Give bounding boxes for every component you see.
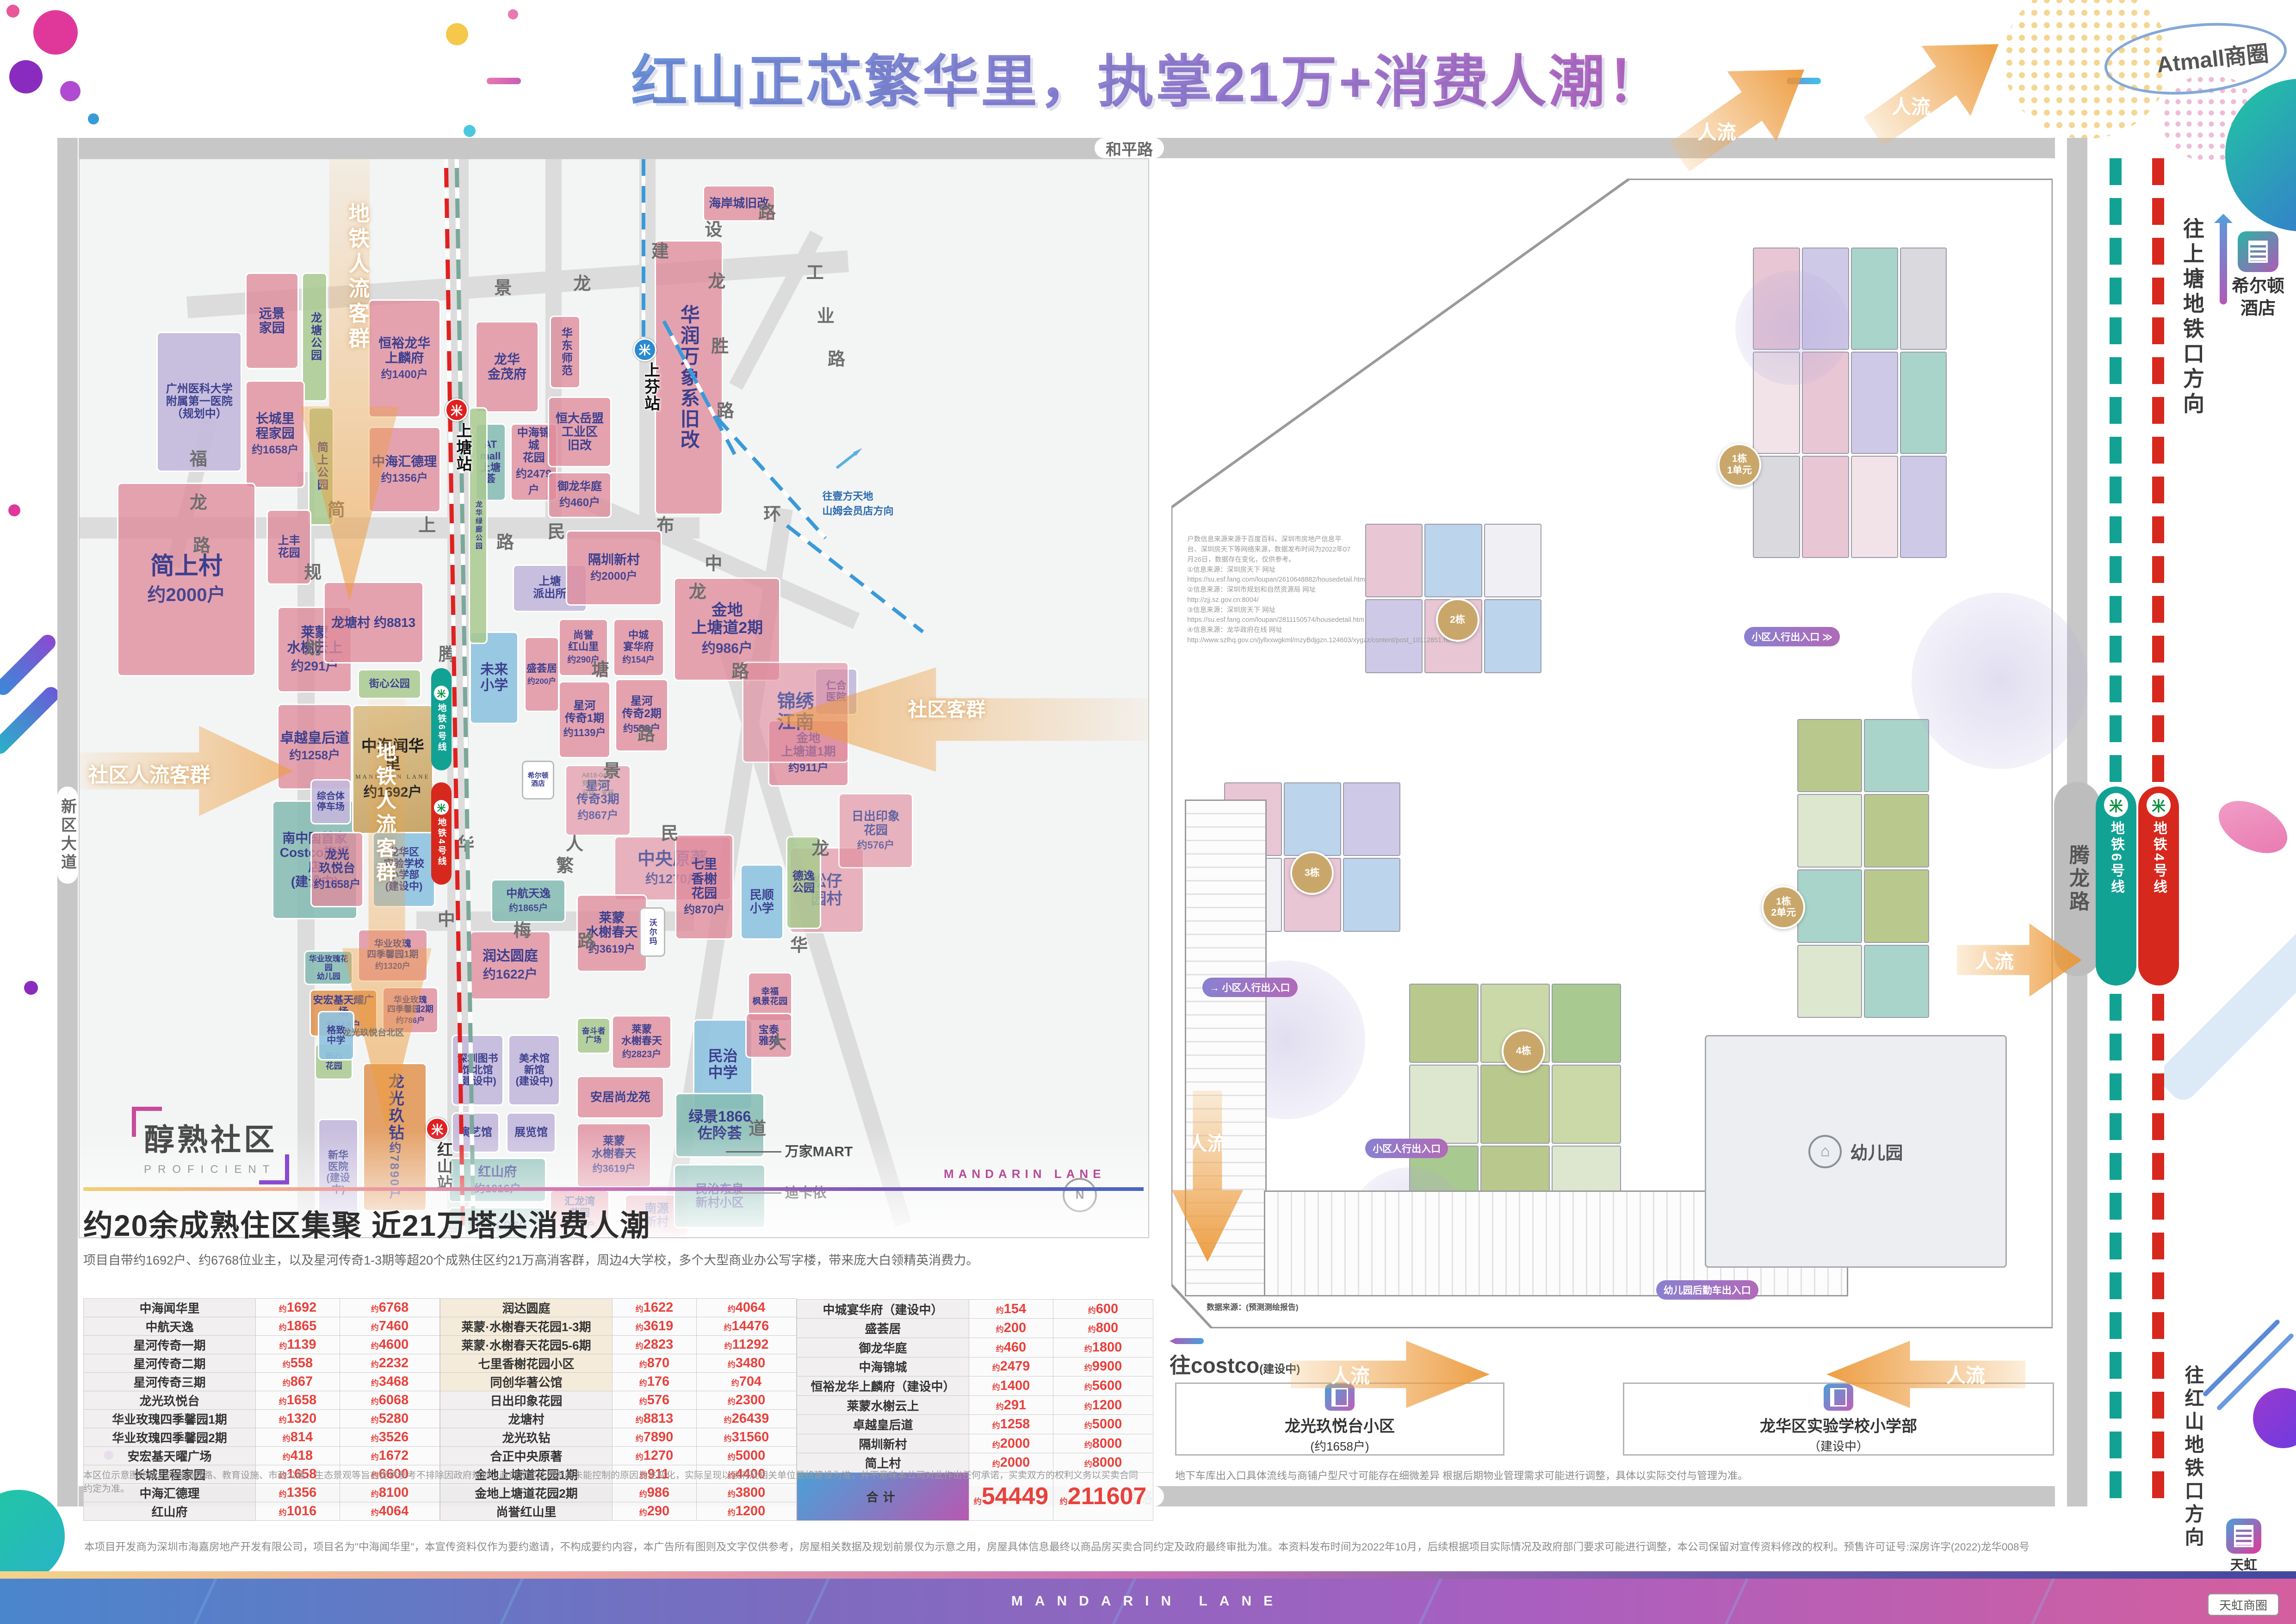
value-approx: 约 bbox=[283, 1360, 291, 1369]
community-badge: 醇熟社区 PROFICIENT bbox=[132, 1107, 289, 1184]
community-badge-text: 醇熟社区 bbox=[144, 1115, 277, 1159]
value-approx: 约 bbox=[974, 1497, 982, 1506]
building-unit bbox=[1864, 719, 1929, 793]
cell-households: 约7890 bbox=[613, 1428, 697, 1447]
value-approx: 约 bbox=[283, 1453, 291, 1462]
building-unit bbox=[1900, 352, 1947, 454]
map-road-char: 龙 bbox=[190, 488, 207, 514]
building-badge: 4栋 bbox=[1502, 1029, 1545, 1073]
value-approx: 约 bbox=[728, 1305, 736, 1314]
cell-planning: 约5600 bbox=[1053, 1376, 1153, 1396]
value-number: 1016 bbox=[287, 1504, 317, 1519]
map-road-char: 业 bbox=[817, 302, 835, 327]
cell-households: 约1658 bbox=[256, 1391, 340, 1410]
table-row: 星河传奇三期约867约3468 bbox=[84, 1373, 440, 1391]
map-flow-label: 地铁人流客群 bbox=[342, 202, 373, 352]
value-approx: 约 bbox=[636, 1434, 644, 1443]
cell-planning: 约704 bbox=[697, 1373, 797, 1391]
map-block-label: 隔圳新村 bbox=[588, 552, 640, 567]
building-unit bbox=[1484, 599, 1541, 673]
value-number: 5600 bbox=[1092, 1378, 1122, 1393]
map-block-shenghuiju: 盛荟居约200户 bbox=[524, 637, 559, 712]
value-number: 290 bbox=[647, 1504, 669, 1519]
map-block-jinmaofu: 龙华金茂府 bbox=[475, 321, 539, 413]
value-number: 2232 bbox=[379, 1356, 409, 1370]
map-sam-note: 往壹方天地山姆会员店方向 bbox=[822, 488, 893, 518]
value-approx: 约 bbox=[1084, 1364, 1092, 1372]
left-arrow-icon bbox=[1170, 1338, 1204, 1344]
cell-households: 约290 bbox=[613, 1502, 697, 1521]
table-header: 项目 bbox=[84, 1276, 256, 1299]
value-approx: 约 bbox=[279, 1342, 287, 1351]
building-unit bbox=[1552, 1065, 1621, 1144]
value-approx: 约 bbox=[636, 1453, 644, 1462]
road-heping-label: 和平路 bbox=[1095, 138, 1164, 158]
building-icon bbox=[1824, 1384, 1853, 1411]
footer-gradient-bar bbox=[0, 1571, 2296, 1579]
cell-households: 约1258 bbox=[969, 1415, 1053, 1434]
value-approx: 约 bbox=[636, 1342, 644, 1351]
table-header: 社区规划（人） bbox=[340, 1276, 440, 1299]
value-number: 1658 bbox=[287, 1393, 317, 1407]
entrance-pill: → 小区人行出入口 bbox=[1202, 978, 1298, 997]
cell-planning: 约1800 bbox=[1053, 1338, 1153, 1357]
map-block-sub: 约154户 bbox=[622, 653, 655, 665]
map-block-label: 龙华金茂府 bbox=[488, 352, 526, 381]
map-block-sub: 约460户 bbox=[559, 493, 600, 509]
cell-planning: 约5000 bbox=[697, 1447, 797, 1465]
site-plan: ⌂幼儿园1栋1单元2栋3栋1栋2单元4栋小区人行出入口 ≫→ 小区人行出入口小区… bbox=[1171, 179, 2053, 1328]
value-number: 2000 bbox=[1000, 1436, 1030, 1451]
decor-circle bbox=[464, 125, 476, 137]
value-approx: 约 bbox=[371, 1323, 379, 1332]
map-block-label: 民治中学 bbox=[708, 1048, 738, 1081]
map-block-label: 幸福枫景花园 bbox=[752, 987, 787, 1007]
cell-project: 龙塘村 bbox=[440, 1410, 613, 1428]
table-row: 隔圳新村约2000约8000 bbox=[797, 1434, 1153, 1453]
cell-planning: 约5280 bbox=[340, 1410, 440, 1428]
building-unit bbox=[1797, 794, 1863, 868]
cell-households: 约200 bbox=[969, 1319, 1053, 1338]
map-road bbox=[729, 230, 823, 390]
line4-capsule: 米 地铁4号线 bbox=[2138, 787, 2179, 986]
map-block-jiuyuetai: 龙光玖悦台约1658户 bbox=[310, 832, 364, 907]
building-unit bbox=[1900, 248, 1947, 350]
map-road-char: 路 bbox=[731, 657, 749, 682]
map-block-longtangcun: 龙塘村 约8813 bbox=[323, 582, 424, 663]
map-block-label: 安居尚龙苑 bbox=[590, 1091, 650, 1104]
value-approx: 约 bbox=[371, 1416, 379, 1425]
flow-label: 人流 bbox=[1331, 1360, 1370, 1388]
value-number: 1200 bbox=[736, 1504, 766, 1519]
cell-households: 约3619 bbox=[613, 1317, 697, 1336]
value-number: 200 bbox=[1004, 1320, 1026, 1335]
cell-planning: 约7460 bbox=[340, 1317, 440, 1336]
cell-project: 红山府 bbox=[84, 1502, 256, 1521]
hotel-icon bbox=[2238, 231, 2278, 272]
map-block-sub: 约1356户 bbox=[381, 469, 428, 485]
bottom-box-community: 龙光玖悦台小区(约1658户) bbox=[1175, 1382, 1504, 1456]
map-block-label: 盛荟居 bbox=[526, 663, 557, 675]
table-header: 社区规划（人） bbox=[1053, 1276, 1153, 1299]
building-unit bbox=[1851, 352, 1898, 454]
building-unit bbox=[1409, 984, 1479, 1063]
district-map: 远景家园龙塘公园广州医科大学附属第一医院（规划中）长城里程家园约1658户简上公… bbox=[79, 158, 1149, 1238]
blue-arrow-icon bbox=[835, 446, 863, 470]
plan-bubble bbox=[1735, 271, 1850, 385]
building-unit bbox=[1552, 984, 1621, 1063]
value-number: 31560 bbox=[732, 1430, 769, 1444]
cell-households: 约2479 bbox=[969, 1357, 1053, 1376]
table-header: 户数（户） bbox=[256, 1276, 340, 1299]
map-line-pill: 米地铁6号线 bbox=[431, 668, 452, 770]
value-number: 814 bbox=[291, 1430, 313, 1444]
value-approx: 约 bbox=[996, 1345, 1004, 1353]
table-row: 恒裕龙华上麟府（建设中）约1400约5600 bbox=[797, 1376, 1153, 1396]
value-approx: 约 bbox=[279, 1323, 287, 1332]
value-number: 5000 bbox=[1092, 1417, 1122, 1432]
map-block-label: 美术馆新馆(建设中) bbox=[516, 1053, 553, 1087]
cell-households: 约558 bbox=[256, 1354, 340, 1373]
map-block-label: 广州医科大学附属第一医院（规划中） bbox=[166, 383, 233, 421]
map-road-char: 胜 bbox=[711, 332, 729, 357]
value-approx: 约 bbox=[1088, 1325, 1096, 1334]
bottom-box-title: 龙光玖悦台小区 bbox=[1285, 1413, 1395, 1436]
value-approx: 约 bbox=[1084, 1441, 1092, 1450]
map-road-char: 华 bbox=[790, 931, 808, 956]
map-block-label: 中城宴华府 bbox=[623, 630, 654, 652]
value-number: 870 bbox=[647, 1356, 669, 1370]
building-1-2 bbox=[1797, 719, 1930, 1018]
bottom-box-school: 龙华区实验学校小学部（建设中） bbox=[1623, 1382, 2054, 1456]
cell-households: 约1016 bbox=[256, 1502, 340, 1521]
value-approx: 约 bbox=[728, 1508, 736, 1517]
value-number: 1692 bbox=[287, 1300, 317, 1315]
map-road-char: 塘 bbox=[591, 655, 609, 681]
table-header-row: 项目户数（户）社区规划（人） bbox=[797, 1276, 1153, 1299]
decor-circle bbox=[6, 5, 19, 18]
bottom-box-sub: （建设中） bbox=[1808, 1437, 1869, 1454]
value-number: 3468 bbox=[379, 1374, 409, 1389]
cell-households: 约154 bbox=[969, 1299, 1053, 1319]
map-block-sub: 约2000户 bbox=[590, 567, 637, 583]
cell-project: 恒裕龙华上麟府（建设中） bbox=[797, 1376, 969, 1396]
map-flow-label: 社区人流客群 bbox=[88, 758, 210, 788]
map-block-sub: 约1658户 bbox=[314, 875, 360, 891]
building-unit bbox=[1424, 524, 1482, 598]
map-block-hengyu: 恒裕龙华上麟府约1400户 bbox=[368, 299, 441, 418]
building-unit bbox=[1365, 599, 1423, 673]
map-block-parking: 综合体停车场 bbox=[310, 779, 351, 824]
table-header: 社区规划（人） bbox=[697, 1276, 797, 1299]
value-approx: 约 bbox=[371, 1397, 379, 1406]
table-row: 七里香榭花园小区约870约3480 bbox=[440, 1354, 797, 1373]
map-block-label: 上丰花园 bbox=[278, 535, 300, 560]
building-unit bbox=[1343, 858, 1400, 932]
map-block-runda: 润达圆庭约1622户 bbox=[470, 931, 551, 1000]
map-block-label: 卓越皇后道 bbox=[280, 731, 349, 746]
value-number: 4064 bbox=[736, 1300, 766, 1315]
cell-households: 约1139 bbox=[256, 1336, 340, 1354]
cell-planning: 约4064 bbox=[340, 1502, 440, 1521]
cell-planning: 约800 bbox=[1053, 1319, 1153, 1338]
households-info-note: 户数信息来源来源于百度百科、深圳市房地产信息平台、深圳房天下等网络来源，数据发布… bbox=[1187, 535, 1355, 645]
map-block-label: 龙光玖悦台 bbox=[319, 848, 355, 875]
map-block-meishuguan: 美术馆新馆(建设中) bbox=[508, 1035, 560, 1106]
map-block-hengda: 恒大岳盟工业区旧改 bbox=[548, 397, 612, 468]
map-block-xinghe1: 星河传奇1期约1139户 bbox=[558, 681, 611, 759]
map-road-char: 大 bbox=[769, 1028, 786, 1054]
value-approx: 约 bbox=[371, 1453, 379, 1462]
cell-project: 星河传奇一期 bbox=[84, 1336, 256, 1354]
value-approx: 约 bbox=[639, 1508, 647, 1517]
building-unit bbox=[1343, 782, 1400, 856]
line6-label: 地铁6号线 bbox=[2106, 821, 2126, 896]
map-block-weilai: 未来小学 bbox=[470, 632, 519, 724]
kindergarten-block: ⌂幼儿园 bbox=[1705, 1035, 2007, 1268]
plan-source-note: 数据来源：(预测测绘报告) bbox=[1207, 1301, 1298, 1312]
map-block-huadong: 华东师范 bbox=[550, 316, 581, 389]
costco-text: 往costco bbox=[1170, 1353, 1259, 1377]
cell-planning: 约600 bbox=[1053, 1299, 1153, 1319]
map-road-char: 龙 bbox=[689, 577, 706, 603]
map-block-label: 御龙华庭 bbox=[557, 481, 602, 493]
cell-planning: 约11292 bbox=[697, 1336, 797, 1354]
table-row: 日出印象花园约576约2300 bbox=[440, 1391, 797, 1410]
cell-planning: 约4600 bbox=[340, 1336, 440, 1354]
map-road-char: 景 bbox=[494, 273, 512, 299]
map-block-changchengli: 长城里程家园约1658户 bbox=[245, 380, 305, 488]
value-number: 11292 bbox=[732, 1337, 768, 1352]
table-header-row: 项目户数（户）社区规划（人） bbox=[84, 1276, 440, 1299]
cell-project: 七里香榭花园小区 bbox=[440, 1354, 613, 1373]
value-approx: 约 bbox=[724, 1342, 732, 1351]
map-block-sub: 约2000户 bbox=[148, 580, 226, 607]
cell-project: 莱蒙·水榭春天花园5-6期 bbox=[440, 1336, 613, 1354]
table-row: 合正中央原著约1270约5000 bbox=[440, 1447, 797, 1465]
building-unit bbox=[1797, 869, 1863, 943]
value-approx: 约 bbox=[371, 1434, 379, 1443]
building-unit bbox=[1409, 1065, 1479, 1144]
value-number: 800 bbox=[1096, 1320, 1118, 1335]
bottom-box-sub: (约1658户) bbox=[1310, 1437, 1369, 1454]
table-row: 星河传奇二期约558约2232 bbox=[84, 1354, 440, 1373]
map-road-char: 划 bbox=[304, 633, 322, 659]
building-badge: 3栋 bbox=[1290, 851, 1334, 895]
cell-project: 卓越皇后道 bbox=[797, 1415, 969, 1434]
value-number: 3526 bbox=[379, 1430, 409, 1444]
rainbow-circle-pill: 天虹商圈 bbox=[2208, 1593, 2279, 1616]
building-unit bbox=[1851, 248, 1898, 350]
cell-households: 约2000 bbox=[969, 1434, 1053, 1453]
value-number: 5000 bbox=[736, 1448, 766, 1463]
title-dash-left bbox=[487, 78, 521, 84]
flow-label: 人流 bbox=[1188, 1128, 1227, 1156]
hilton-poi: 希尔顿酒店 bbox=[2228, 231, 2288, 320]
cell-project: 华业玫瑰四季馨园1期 bbox=[84, 1410, 256, 1428]
value-approx: 约 bbox=[1084, 1345, 1092, 1353]
building-unit bbox=[1900, 456, 1947, 558]
building-unit bbox=[1864, 869, 1929, 943]
value-approx: 约 bbox=[728, 1397, 736, 1406]
map-block-label: 尚誉红山里 bbox=[568, 630, 599, 652]
table-row: 华业玫瑰四季馨园2期约814约3526 bbox=[84, 1428, 440, 1447]
value-number: 6068 bbox=[379, 1393, 409, 1407]
entrance-pill: 小区人行出入口 bbox=[1365, 1139, 1448, 1158]
value-approx: 约 bbox=[636, 1305, 644, 1314]
value-approx: 约 bbox=[724, 1323, 732, 1332]
cell-households: 约1622 bbox=[613, 1299, 697, 1317]
map-blue-line bbox=[642, 159, 645, 342]
table-row: 尚誉红山里约290约1200 bbox=[440, 1502, 797, 1521]
value-number: 600 bbox=[1096, 1302, 1118, 1316]
map-block-minshun: 民顺小学 bbox=[740, 864, 784, 940]
table-row: 中海锦城约2479约9900 bbox=[797, 1357, 1153, 1376]
table-row: 润达圆庭约1622约4064 bbox=[440, 1299, 797, 1317]
map-block-sub: 约870户 bbox=[684, 900, 724, 917]
cell-project: 中航天逸 bbox=[84, 1317, 256, 1336]
map-block-label: 华东师范 bbox=[559, 327, 571, 377]
value-number: 1400 bbox=[1000, 1378, 1030, 1393]
map-block-sub: 约3619户 bbox=[588, 940, 635, 956]
map-road-char: 龙 bbox=[811, 834, 829, 860]
map-block-shuixie2823: 莱蒙水榭春天约2823户 bbox=[612, 1015, 671, 1069]
map-block-jiexin-park: 街心公园 bbox=[358, 669, 422, 699]
cell-households: 约867 bbox=[256, 1373, 340, 1391]
cell-planning: 约1672 bbox=[340, 1447, 440, 1465]
value-number: 14476 bbox=[732, 1319, 769, 1333]
map-block-label: 金地上塘道2期 bbox=[691, 601, 763, 637]
value-number: 3480 bbox=[736, 1356, 766, 1370]
value-number: 1200 bbox=[1092, 1398, 1122, 1413]
table-row: 华业玫瑰四季馨园1期约1320约5280 bbox=[84, 1410, 440, 1428]
map-road-char: 民 bbox=[661, 819, 679, 844]
map-block-label: 润达圆庭 bbox=[483, 948, 538, 964]
value-approx: 约 bbox=[371, 1508, 379, 1517]
cell-project: 安宏基天曜广场 bbox=[84, 1447, 256, 1465]
map-block-label: 龙塘公园 bbox=[309, 312, 321, 362]
cell-planning: 约8000 bbox=[1053, 1434, 1153, 1453]
cell-households: 约870 bbox=[613, 1354, 697, 1373]
mall-icon bbox=[2226, 1519, 2261, 1554]
cell-project: 日出印象花园 bbox=[440, 1391, 613, 1410]
hilton-label: 希尔顿酒店 bbox=[2232, 276, 2284, 320]
kindergarten-icon: ⌂ bbox=[1808, 1135, 1842, 1168]
value-approx: 约 bbox=[371, 1360, 379, 1369]
brand-small: MANDARIN LANE bbox=[944, 1167, 1106, 1181]
cell-households: 约8813 bbox=[613, 1410, 697, 1428]
cell-project: 龙光玖钻 bbox=[440, 1428, 613, 1447]
cell-project: 龙光玖悦台 bbox=[84, 1391, 256, 1410]
map-block-label: 星河传奇2期 bbox=[622, 695, 661, 720]
legal-disclaimer: 本项目开发商为深圳市海嘉房地产开发有限公司，项目名为"中海闻华里"，本宣传资料仅… bbox=[84, 1539, 2073, 1554]
map-block-label: 街心公园 bbox=[369, 678, 410, 690]
map-road-char: 梅 bbox=[514, 916, 531, 942]
cell-planning: 约6768 bbox=[340, 1299, 440, 1317]
map-block-label: 上塘派出所 bbox=[533, 576, 566, 601]
value-approx: 约 bbox=[992, 1383, 1000, 1392]
map-block-sub: 约1258户 bbox=[289, 746, 340, 763]
map-block-label: 七里香榭花园 bbox=[691, 857, 717, 900]
building-unit bbox=[1851, 456, 1898, 558]
map-road-char: 上 bbox=[418, 511, 436, 536]
map-road-char: 规 bbox=[304, 558, 322, 583]
cell-households: 约1270 bbox=[613, 1447, 697, 1465]
cell-planning: 约3468 bbox=[340, 1373, 440, 1391]
table-row: 御龙华庭约460约1800 bbox=[797, 1338, 1153, 1357]
map-block-sub: 约1658户 bbox=[252, 440, 298, 457]
building-unit bbox=[1284, 782, 1341, 856]
line4-label: 地铁4号线 bbox=[2148, 821, 2169, 896]
map-block-label: 华润万象系旧改 bbox=[678, 304, 699, 450]
table-row: 安宏基天曜广场约418约1672 bbox=[84, 1447, 440, 1465]
map-block-label: 恒裕龙华上麟府 bbox=[378, 336, 430, 365]
map-road-char: 福 bbox=[190, 445, 207, 470]
flow-label: 人流 bbox=[1975, 946, 2014, 974]
map-block-label: 沃尔玛 bbox=[648, 918, 657, 946]
value-number: 576 bbox=[647, 1393, 669, 1407]
decor-bar bbox=[0, 684, 62, 757]
map-block-label: 德逸公园 bbox=[792, 870, 815, 895]
value-approx: 约 bbox=[724, 1434, 732, 1443]
map-road-char: 龙 bbox=[708, 267, 725, 292]
map-line-pill-label: 地铁4号线 bbox=[435, 818, 447, 867]
value-number: 7460 bbox=[379, 1319, 409, 1333]
map-road-char: 路 bbox=[577, 927, 595, 952]
table-row: 龙光玖钻约7890约31560 bbox=[440, 1428, 797, 1447]
cell-planning: 约26439 bbox=[697, 1410, 797, 1428]
map-beiqu-label: 龙光玖悦台北区 bbox=[342, 1026, 404, 1038]
value-approx: 约 bbox=[992, 1441, 1000, 1450]
building-unit bbox=[1480, 1065, 1550, 1144]
building-unit bbox=[1802, 456, 1849, 558]
cell-project: 御龙华庭 bbox=[797, 1338, 969, 1357]
cell-planning: 约2300 bbox=[697, 1391, 797, 1410]
metro-station-icon: 米 bbox=[633, 338, 656, 361]
cell-households: 约2823 bbox=[613, 1336, 697, 1354]
metro-station-label: 上塘站 bbox=[452, 422, 474, 472]
metro-icon: 米 bbox=[2147, 793, 2171, 817]
value-number: 6768 bbox=[379, 1300, 409, 1315]
table-header: 项目 bbox=[440, 1276, 613, 1299]
value-number: 176 bbox=[647, 1374, 669, 1389]
map-road-char: 龙 bbox=[573, 269, 591, 295]
table-row: 中城宴华府（建设中）约154约600 bbox=[797, 1299, 1153, 1319]
table-header: 户数（户） bbox=[969, 1276, 1053, 1299]
cell-project: 同创华著公馆 bbox=[440, 1373, 613, 1391]
value-approx: 约 bbox=[639, 1379, 647, 1388]
map-block-jianshangcun: 简上村约2000户 bbox=[117, 483, 256, 676]
to-shangtang-label: 往上塘地铁口方向 bbox=[2177, 217, 2208, 417]
value-number: 8813 bbox=[644, 1411, 674, 1426]
cell-planning: 约3480 bbox=[697, 1354, 797, 1373]
map-road-char: 路 bbox=[496, 528, 514, 553]
kindergarten-label: 幼儿园 bbox=[1850, 1139, 1903, 1164]
value-approx: 约 bbox=[1084, 1421, 1092, 1430]
cell-planning: 约4064 bbox=[697, 1299, 797, 1317]
costco-direction: 往costco(建设中) bbox=[1170, 1338, 1300, 1379]
value-approx: 约 bbox=[728, 1360, 736, 1369]
map-block-geshen: 隔圳新村约2000户 bbox=[566, 530, 662, 606]
footer-band: MANDARIN LANE bbox=[0, 1579, 2296, 1624]
map-block-sub: 约867户 bbox=[577, 806, 618, 822]
map-block-richu: 日出印象花园约576户 bbox=[838, 793, 913, 868]
metro-icon: 米 bbox=[2104, 793, 2128, 817]
cell-households: 约460 bbox=[969, 1338, 1053, 1357]
value-number: 5280 bbox=[379, 1411, 409, 1426]
map-block-sub: 约1139户 bbox=[563, 725, 606, 739]
map-block-yuanjing: 远景家园 bbox=[245, 273, 299, 370]
